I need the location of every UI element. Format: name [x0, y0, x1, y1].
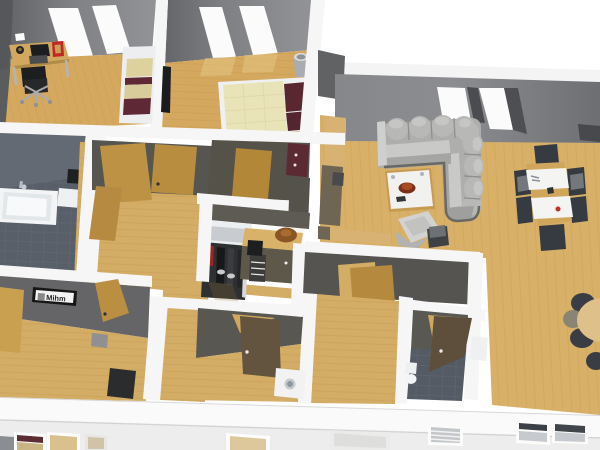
svg-text:Mihm: Mihm: [46, 293, 66, 303]
